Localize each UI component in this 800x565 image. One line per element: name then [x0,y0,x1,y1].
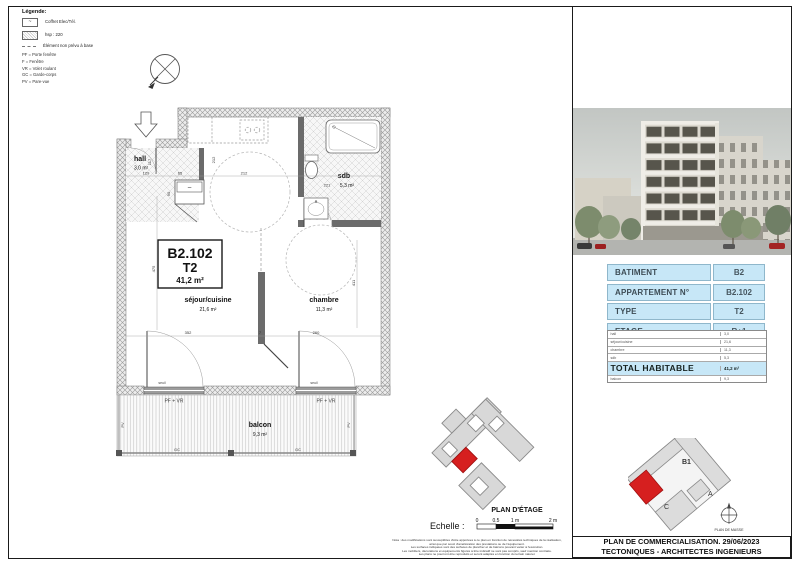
bathtub [326,120,380,153]
table-dashed-circle [210,152,290,232]
masse-label-b1: B1 [682,459,691,466]
unit-type: T2 [183,261,198,275]
surface-label: hall [608,332,720,336]
kitchen-counter [188,117,268,143]
coffret-symbol: ~ [187,185,191,192]
building-render-image [573,108,791,255]
surface-label: chambre [608,348,720,352]
window-chambre [296,331,356,394]
dim-212: 212 [241,171,248,176]
window-sejour [144,331,204,394]
table-row: chambre 11,3 [608,347,766,355]
table-row: hall 3,0 [608,331,766,339]
info-label-appartement: APPARTEMENT N° [607,284,711,301]
sdb-area: 5,3 m² [340,183,355,189]
scale-bar: Echelle : 0 0.5 1 m 2 m [425,515,575,537]
info-value-batiment: B2 [713,264,765,281]
entrance-arrow-icon [135,112,157,137]
info-label-batiment: BATIMENT [607,264,711,281]
dim-129: 129 [143,171,150,176]
surface-label: séjour/cuisine [608,340,720,344]
floor-plan-drawing: ~ [100,100,400,470]
legend-item-label: hsp : 220 [45,33,109,38]
surface-value: 9,3 [720,377,766,381]
dim-65: 65 [178,171,183,176]
disclaimer-note: Nota : des modifications sont susceptibl… [383,539,571,557]
north-compass-icon [146,51,186,95]
surface-label: balcon [608,377,720,381]
total-habitable-row: TOTAL HABITABLE 41,2 m² [608,362,766,376]
scale-tick-0: 0 [476,518,479,524]
scale-label: Echelle : [430,521,465,531]
masse-compass-icon [721,503,738,525]
dim-352: 352 [185,330,192,335]
dim-212b: 212 [211,156,216,163]
title-block: PLAN DE COMMERCIALISATION. 29/06/2023 TE… [572,536,791,558]
hall-label: hall [134,156,146,163]
legend-item-non-prevu: Élément non prévu à base [22,44,182,49]
info-value-type: T2 [713,303,765,320]
sdb-label: sdb [338,173,350,180]
dim-475: 475 [151,265,156,272]
pf-vr-label-1: PF + VR [164,399,183,405]
panel-divider [572,6,573,558]
dim-117: 117 [147,158,152,165]
table-row: séjour/cuisine 21,6 [608,339,766,347]
balcon-area: 9,3 m² [253,432,268,438]
surface-value: 21,6 [720,340,766,344]
table-row: BATIMENT B2 [607,264,765,281]
etage-caption: PLAN D'ÉTAGE [491,505,543,514]
masse-label-c: C [664,504,669,511]
dashed-line-icon [22,46,36,47]
chambre-dashed-circle [286,225,356,295]
disclaimer-line: Les plans ne pourront être reproduits et… [383,553,571,557]
dim-260: 260 [313,330,320,335]
masse-label-a: A [708,491,713,498]
dim-411: 411 [351,279,356,286]
dim-221: 221 [324,183,331,188]
masse-caption: PLAN DE MASSE [715,528,745,532]
legend-item-label: Coffret Elec/Tél. [45,20,109,25]
washbasin [304,198,328,219]
key-plan-etage: PLAN D'ÉTAGE [420,385,555,517]
plan-sheet: Légende: ~ Coffret Elec/Tél. hsp : 220 É… [0,0,800,565]
legend-title: Légende: [22,9,182,15]
surface-table: hall 3,0 séjour/cuisine 21,6 chambre 11,… [607,330,767,383]
balcon-label: balcon [249,422,272,429]
gc-label-1: GC [174,447,180,452]
gc-label-2: GC [295,447,301,452]
info-value-appartement: B2.102 [713,284,765,301]
table-row: sdb 5,3 [608,354,766,362]
info-label-type: TYPE [607,303,711,320]
surface-value: 5,3 [720,356,766,360]
title-line-2: TECTONIQUES - ARCHITECTES INGENIEURS [573,547,790,557]
seuil-label-1: seuil [158,381,165,385]
unit-area: 41,2 m² [176,276,204,285]
unit-id: B2.102 [167,245,212,261]
pv-label-left: PV [120,422,125,428]
surface-label: sdb [608,356,720,360]
hatch-swatch-icon [22,31,38,40]
unit-label-box: B2.102 T2 41,2 m² [158,240,222,288]
sejour-label: séjour/cuisine [184,297,231,304]
dim-90: 90 [166,191,171,196]
seuil-label-2: seuil [310,381,317,385]
total-label: TOTAL HABITABLE [608,363,720,373]
scale-tick-1m: 1 m [511,518,519,524]
chambre-area: 11,3 m² [316,307,333,313]
table-row: TYPE T2 [607,303,765,320]
legend-item-coffret: ~ Coffret Elec/Tél. [22,18,182,27]
scale-tick-2m: 2 m [549,518,557,524]
total-value: 41,2 m² [720,366,766,371]
surface-value: 3,0 [720,332,766,336]
scale-tick-05: 0.5 [493,518,500,524]
surface-value: 11,3 [720,348,766,352]
table-row: balcon 9,3 [608,376,766,383]
table-row: APPARTEMENT N° B2.102 [607,284,765,301]
chambre-label: chambre [309,297,338,304]
pf-vr-label-2: PF + VR [316,399,335,405]
pv-label-right: PV [346,422,351,428]
toilet [305,155,318,179]
key-plan-masse: B1 A C PLAN DE MASSE [628,438,758,536]
title-line-1: PLAN DE COMMERCIALISATION. 29/06/2023 [573,537,790,547]
chambre-door-leaf [264,344,288,368]
sejour-area: 21,6 m² [200,307,217,313]
coffret-symbol-icon: ~ [22,18,38,27]
legend-item-label: Élément non prévu à base [43,44,107,49]
legend-item-hsp: hsp : 220 [22,31,182,40]
